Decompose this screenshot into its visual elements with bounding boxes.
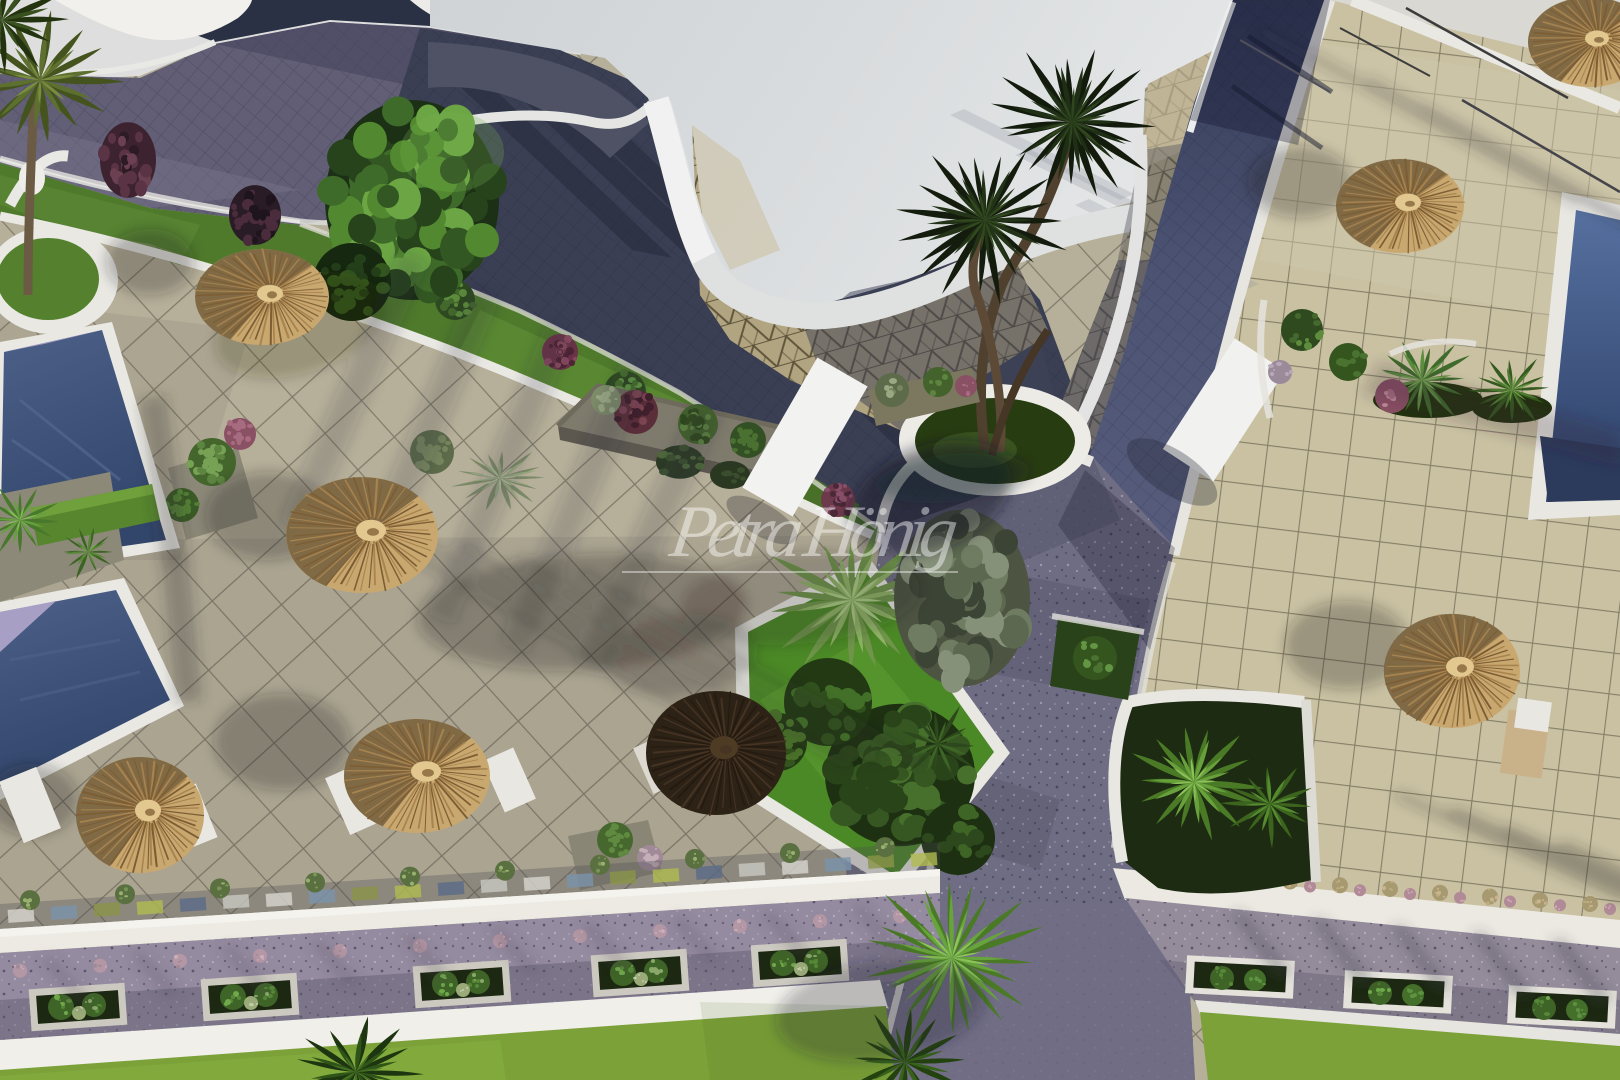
svg-text:Petra Hönig: Petra Hönig <box>665 491 963 573</box>
